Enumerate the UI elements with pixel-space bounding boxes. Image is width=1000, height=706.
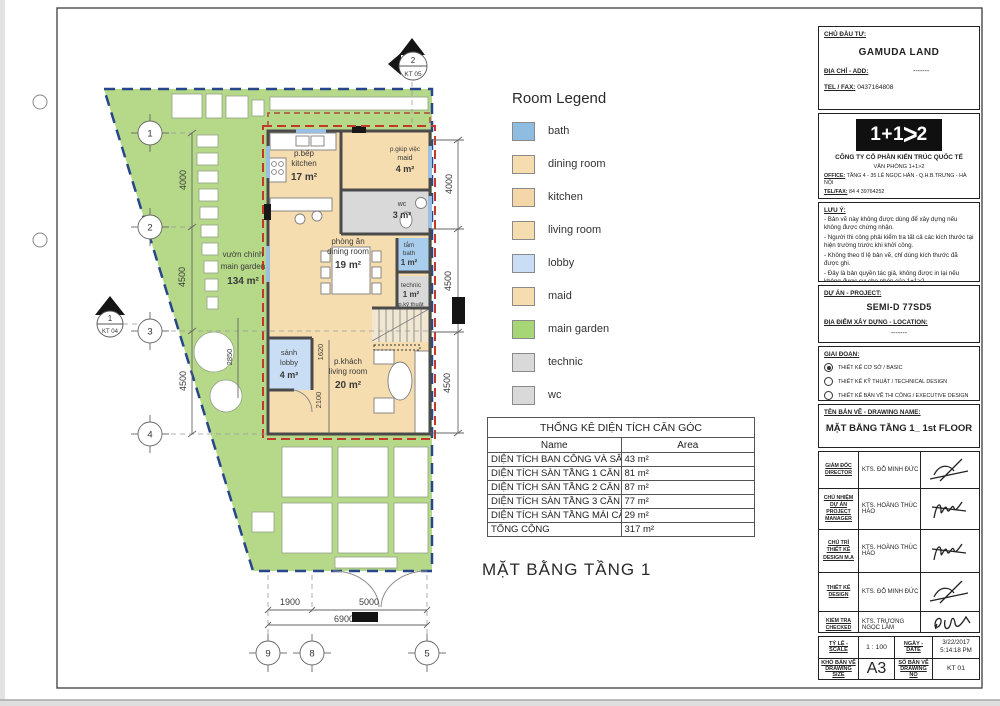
legend-swatch [512, 353, 535, 372]
row-name: TỔNG CỘNG [488, 523, 622, 537]
drawing-number: KT 01 [947, 665, 965, 672]
notes-box: LƯU Ý: - Bản vẽ này không được dùng để x… [818, 202, 980, 282]
phase-option: THIẾT KẾ BẢN VẼ THI CÔNG / EXECUTIVE DES… [824, 391, 974, 400]
svg-text:5: 5 [424, 649, 429, 660]
drawing-main-title: MẶT BẰNG TẦNG 1 [482, 560, 651, 580]
office-label: OFFICE: [824, 173, 845, 179]
table-row: DIỆN TÍCH SÀN TẦNG MÁI CĂN GÓC 29 m² [488, 509, 755, 523]
svg-text:sảnh: sảnh [281, 348, 297, 357]
svg-text:tắm: tắm [404, 240, 415, 249]
punch-hole [33, 95, 47, 109]
sign-name: KTS. ĐỖ MINH ĐỨC [859, 452, 921, 488]
signature [921, 530, 979, 572]
phase-option-label: THIẾT KẾ BẢN VẼ THI CÔNG / EXECUTIVE DES… [838, 393, 968, 399]
table-col-area: Area [621, 438, 755, 453]
row-area: 77 m² [621, 495, 755, 509]
location-label: ĐỊA ĐIỂM XÂY DỰNG - LOCATION: [824, 319, 974, 326]
svg-text:p.giúp việc: p.giúp việc [390, 146, 420, 153]
signature [921, 452, 979, 488]
svg-text:134 m²: 134 m² [227, 276, 259, 287]
signature-row: GIÁM ĐỐC DIRECTOR KTS. ĐỖ MINH ĐỨC [819, 452, 979, 489]
sheet-size: A3 [867, 660, 887, 678]
legend-title: Room Legend [512, 90, 687, 107]
legend-label: bath [548, 125, 569, 137]
legend-label: wc [548, 389, 561, 401]
sign-role-en: PROJECT MANAGER [820, 509, 857, 523]
legend-item: lobby [512, 253, 687, 273]
svg-text:4 m²: 4 m² [280, 370, 299, 380]
note-item: - Bản vẽ này không được dùng để xây dựng… [824, 216, 974, 232]
signature-row: THIẾT KẾ DESIGN KTS. ĐỖ MINH ĐỨC [819, 573, 979, 612]
signature-row: CHỦ NHIỆM DỰ ÁN PROJECT MANAGER KTS. HOÀ… [819, 489, 979, 530]
door-leaf [264, 204, 271, 220]
svg-text:wc: wc [397, 201, 407, 208]
size-number-row: KHỔ BẢN VẼ DRAWING SIZE A3 SỐ BẢN VẼ DRA… [819, 659, 979, 680]
signature-box: GIÁM ĐỐC DIRECTOR KTS. ĐỖ MINH ĐỨC CHỦ N… [818, 451, 980, 633]
area-statistics-table: THỐNG KÊ DIỆN TÍCH CĂN GÓC Name Area DIỆ… [487, 417, 755, 537]
section-marker-left: 1 KT 04 [95, 296, 125, 337]
row-name: DIỆN TÍCH BAN CÔNG VÀ SÂN MÁI CĂN GÓC [488, 453, 622, 467]
sign-name: KTS. HOÀNG THÚC HÀO [859, 530, 921, 572]
drawing-name: MẶT BẰNG TẦNG 1_ 1st FLOOR [824, 422, 974, 435]
svg-text:4000: 4000 [178, 170, 188, 190]
office-name: VĂN PHÒNG 1+1>2 [824, 164, 974, 170]
svg-text:17 m²: 17 m² [291, 172, 318, 183]
scan-edge-bottom [0, 700, 1000, 706]
legend-item: dining room [512, 154, 687, 174]
owner-box: CHỦ ĐẦU TƯ: GAMUDA LAND ĐỊA CHỈ - ADD: -… [818, 26, 980, 110]
sign-role-vi: CHỦ NHIỆM DỰ ÁN [820, 495, 857, 509]
svg-text:4500: 4500 [443, 271, 453, 291]
svg-text:2: 2 [147, 223, 152, 234]
table-row: DIỆN TÍCH BAN CÔNG VÀ SÂN MÁI CĂN GÓC 43… [488, 453, 755, 467]
row-area: 29 m² [621, 509, 755, 523]
company-logo: 1+1 > 2 [856, 119, 942, 151]
svg-text:bath: bath [403, 250, 416, 257]
svg-text:main garden: main garden [221, 262, 265, 271]
company-name: CÔNG TY CỔ PHẦN KIẾN TRÚC QUỐC TẾ [824, 154, 974, 161]
row-area: 317 m² [621, 523, 755, 537]
scale-value: 1 : 100 [866, 644, 887, 651]
svg-text:2: 2 [411, 56, 416, 65]
office-telfax-label: TEL/FAX: [824, 189, 848, 195]
logo-chevron: > [903, 118, 918, 151]
svg-text:4500: 4500 [177, 267, 187, 287]
sign-role-en: DIRECTOR [825, 470, 852, 477]
legend-label: lobby [548, 257, 574, 269]
svg-text:1: 1 [108, 314, 113, 323]
legend-label: main garden [548, 323, 609, 335]
legend-item: living room [512, 220, 687, 240]
svg-text:8: 8 [309, 649, 314, 660]
sign-role-vi: CHỦ TRÌ THIẾT KẾ [820, 540, 857, 554]
room-legend: Room Legend bath dining room kitchen liv… [512, 90, 687, 418]
row-name: DIỆN TÍCH SÀN TẦNG MÁI CĂN GÓC [488, 509, 622, 523]
phase-option-label: THIẾT KẾ KỸ THUẬT / TECHNICAL DESIGN [838, 379, 947, 385]
sign-name: KTS. TRƯƠNG NGỌC LÂM [859, 612, 921, 633]
gate-swing-arcs [333, 571, 427, 607]
date-value: 3/22/2017 [942, 639, 970, 647]
svg-text:p.bếp: p.bếp [294, 149, 315, 158]
legend-label: dining room [548, 158, 605, 170]
date-label: NGÀY - DATE [896, 641, 931, 653]
scale-label: TỶ LỆ - SCALE [820, 641, 857, 653]
legend-item: bath [512, 121, 687, 141]
legend-item: maid [512, 286, 687, 306]
svg-text:4 m²: 4 m² [396, 164, 415, 174]
svg-text:maid: maid [397, 155, 412, 162]
scale-date-row: TỶ LỆ - SCALE 1 : 100 NGÀY - DATE 3/22/2… [819, 637, 979, 659]
table-row: DIỆN TÍCH SÀN TẦNG 3 CĂN GÓC 77 m² [488, 495, 755, 509]
svg-text:living room: living room [329, 367, 368, 376]
section-marker-top: 2 KT 05 [388, 38, 427, 80]
table-row-total: TỔNG CỘNG 317 m² [488, 523, 755, 537]
scale-date-box: TỶ LỆ - SCALE 1 : 100 NGÀY - DATE 3/22/2… [818, 636, 980, 680]
svg-text:3: 3 [147, 327, 152, 338]
svg-text:4500: 4500 [178, 371, 188, 391]
project-label: DỰ ÁN - PROJECT: [824, 290, 974, 297]
row-name: DIỆN TÍCH SÀN TẦNG 2 CĂN GÓC [488, 481, 622, 495]
drawing-sheet: 4000 4500 4500 4000 4500 4500 1900 5000 … [0, 0, 1000, 706]
phase-radio [824, 391, 833, 400]
redaction-mark [452, 297, 465, 324]
signature [921, 573, 979, 611]
row-name: DIỆN TÍCH SÀN TẦNG 3 CĂN GÓC [488, 495, 622, 509]
svg-text:3 m²: 3 m² [393, 210, 412, 220]
svg-text:p.khách: p.khách [334, 357, 362, 366]
title-block: CHỦ ĐẦU TƯ: GAMUDA LAND ĐỊA CHỈ - ADD: -… [818, 26, 980, 680]
legend-label: kitchen [548, 191, 583, 203]
svg-text:4000: 4000 [444, 174, 454, 194]
office-address: TẦNG 4 - 35 LÊ NGỌC HÂN - Q.H.B.TRƯNG - … [824, 173, 966, 186]
address-value: ------- [868, 68, 974, 75]
svg-text:1 m²: 1 m² [401, 258, 418, 267]
address-label: ĐỊA CHỈ - ADD: [824, 68, 868, 75]
note-item: - Đây là bản quyền tác giả, không được i… [824, 270, 974, 282]
time-value: 5:14:18 PM [940, 647, 972, 655]
note-item: - Người thi công phải kiểm tra tất cả cá… [824, 234, 974, 250]
logo-text: 2 [917, 124, 928, 146]
svg-text:vườn chính: vườn chính [223, 250, 264, 259]
office-telfax: 84 4 39764252 [849, 189, 884, 195]
redaction-mark [352, 612, 378, 622]
door-leaf [352, 126, 366, 133]
row-area: 81 m² [621, 467, 755, 481]
logo-text: 1+1 [870, 124, 904, 146]
phase-option: THIẾT KẾ KỸ THUẬT / TECHNICAL DESIGN [824, 377, 974, 386]
svg-text:phòng ăn: phòng ăn [331, 237, 364, 246]
scan-edge-left [0, 0, 5, 706]
svg-text:1: 1 [147, 129, 152, 140]
svg-text:KT 05: KT 05 [404, 71, 422, 78]
sign-name: KTS. ĐỖ MINH ĐỨC [859, 573, 921, 611]
notes-label: LƯU Ý: [824, 207, 974, 214]
legend-swatch [512, 320, 535, 339]
drawing-name-label: TÊN BẢN VẼ - DRAWING NAME: [824, 409, 974, 416]
legend-swatch [512, 386, 535, 405]
signature [921, 612, 979, 633]
project-box: DỰ ÁN - PROJECT: SEMI-D 77SD5 ĐỊA ĐIỂM X… [818, 285, 980, 343]
note-item: - Không theo tỉ lệ bản vẽ, chỉ dùng kích… [824, 252, 974, 268]
svg-text:20 m²: 20 m² [335, 380, 362, 391]
svg-text:9: 9 [265, 649, 270, 660]
svg-text:dining room: dining room [327, 247, 369, 256]
room-wc [341, 190, 430, 234]
owner-label: CHỦ ĐẦU TƯ: [824, 31, 974, 38]
company-box: 1+1 > 2 CÔNG TY CỔ PHẦN KIẾN TRÚC QUỐC T… [818, 113, 980, 199]
location-value: ------- [824, 330, 974, 337]
sign-role-vi: THIẾT KẾ [827, 585, 851, 592]
row-name: DIỆN TÍCH SÀN TẦNG 1 CĂN GÓC [488, 467, 622, 481]
svg-text:kitchen: kitchen [291, 159, 316, 168]
phase-radio [824, 377, 833, 386]
legend-label: maid [548, 290, 572, 302]
svg-text:technic: technic [401, 282, 421, 289]
phase-radio [824, 363, 833, 372]
legend-item: wc [512, 385, 687, 405]
table-col-name: Name [488, 438, 622, 453]
svg-text:2100: 2100 [314, 392, 323, 409]
svg-text:1900: 1900 [280, 597, 300, 607]
svg-text:4: 4 [147, 430, 152, 441]
svg-text:5000: 5000 [359, 597, 379, 607]
svg-text:6900: 6900 [334, 614, 354, 624]
telfax-label: TEL / FAX: [824, 84, 855, 91]
table-row: DIỆN TÍCH SÀN TẦNG 2 CĂN GÓC 87 m² [488, 481, 755, 495]
project-name: SEMI-D 77SD5 [824, 302, 974, 312]
legend-item: kitchen [512, 187, 687, 207]
legend-swatch [512, 155, 535, 174]
sign-role-en: DESIGN [829, 592, 849, 599]
number-label2: DRAWING NO [896, 666, 931, 678]
sign-role-vi: KIỂM TRA [826, 618, 851, 625]
signature-row: KIỂM TRA CHECKED KTS. TRƯƠNG NGỌC LÂM [819, 612, 979, 633]
signature [921, 489, 979, 529]
legend-swatch [512, 188, 535, 207]
legend-swatch [512, 287, 535, 306]
row-area: 87 m² [621, 481, 755, 495]
svg-text:1620: 1620 [316, 344, 325, 361]
row-area: 43 m² [621, 453, 755, 467]
svg-text:p.kỹ thuật: p.kỹ thuật [398, 302, 424, 308]
telfax-value: 0437164808 [857, 84, 893, 91]
phase-label: GIAI ĐOẠN: [824, 351, 974, 358]
phase-option-label: THIẾT KẾ CƠ SỞ / BASIC [838, 365, 903, 371]
svg-text:19 m²: 19 m² [335, 260, 362, 271]
svg-text:4500: 4500 [442, 373, 452, 393]
svg-text:KT 04: KT 04 [102, 329, 119, 335]
legend-item: technic [512, 352, 687, 372]
svg-text:2850: 2850 [225, 349, 234, 366]
legend-label: technic [548, 356, 583, 368]
sign-name: KTS. HOÀNG THÚC HÀO [859, 489, 921, 529]
svg-text:1 m²: 1 m² [403, 290, 420, 299]
legend-item: main garden [512, 319, 687, 339]
phase-option: THIẾT KẾ CƠ SỞ / BASIC [824, 363, 974, 372]
sign-role-en: DESIGN M.A [823, 555, 854, 562]
legend-label: living room [548, 224, 601, 236]
legend-swatch [512, 221, 535, 240]
sign-role-vi: GIÁM ĐỐC [825, 463, 852, 470]
phase-box: GIAI ĐOẠN: THIẾT KẾ CƠ SỞ / BASIC THIẾT … [818, 346, 980, 401]
sign-role-en: CHECKED [826, 625, 852, 632]
legend-swatch [512, 122, 535, 141]
svg-text:lobby: lobby [280, 358, 298, 367]
owner-name: GAMUDA LAND [824, 47, 974, 58]
punch-hole [33, 233, 47, 247]
legend-swatch [512, 254, 535, 273]
size-label2: DRAWING SIZE [820, 666, 857, 678]
table-row: DIỆN TÍCH SÀN TẦNG 1 CĂN GÓC 81 m² [488, 467, 755, 481]
drawing-name-box: TÊN BẢN VẼ - DRAWING NAME: MẶT BẰNG TẦNG… [818, 404, 980, 448]
table-title: THỐNG KÊ DIỆN TÍCH CĂN GÓC [488, 418, 755, 438]
signature-row: CHỦ TRÌ THIẾT KẾ DESIGN M.A KTS. HOÀNG T… [819, 530, 979, 573]
